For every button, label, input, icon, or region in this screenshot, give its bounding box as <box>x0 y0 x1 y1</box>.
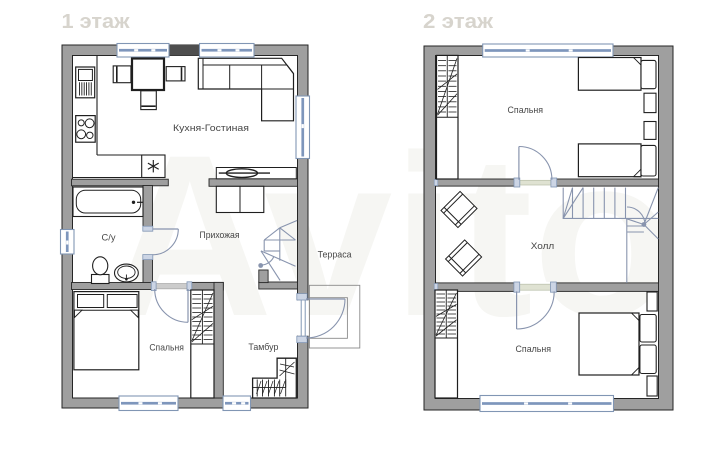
svg-text:Прихожая: Прихожая <box>200 230 240 240</box>
svg-text:2 этаж: 2 этаж <box>423 11 494 33</box>
svg-text:Спальня: Спальня <box>516 344 552 354</box>
svg-text:Кухня-Гостиная: Кухня-Гостиная <box>173 123 249 133</box>
svg-text:Холл: Холл <box>531 241 555 251</box>
svg-text:1 этаж: 1 этаж <box>62 11 131 33</box>
svg-text:Спальня: Спальня <box>149 342 184 352</box>
svg-text:С/у: С/у <box>102 232 116 242</box>
svg-text:Терраса: Терраса <box>318 250 353 260</box>
svg-text:Тамбур: Тамбур <box>248 342 278 352</box>
svg-text:Спальня: Спальня <box>508 105 544 115</box>
